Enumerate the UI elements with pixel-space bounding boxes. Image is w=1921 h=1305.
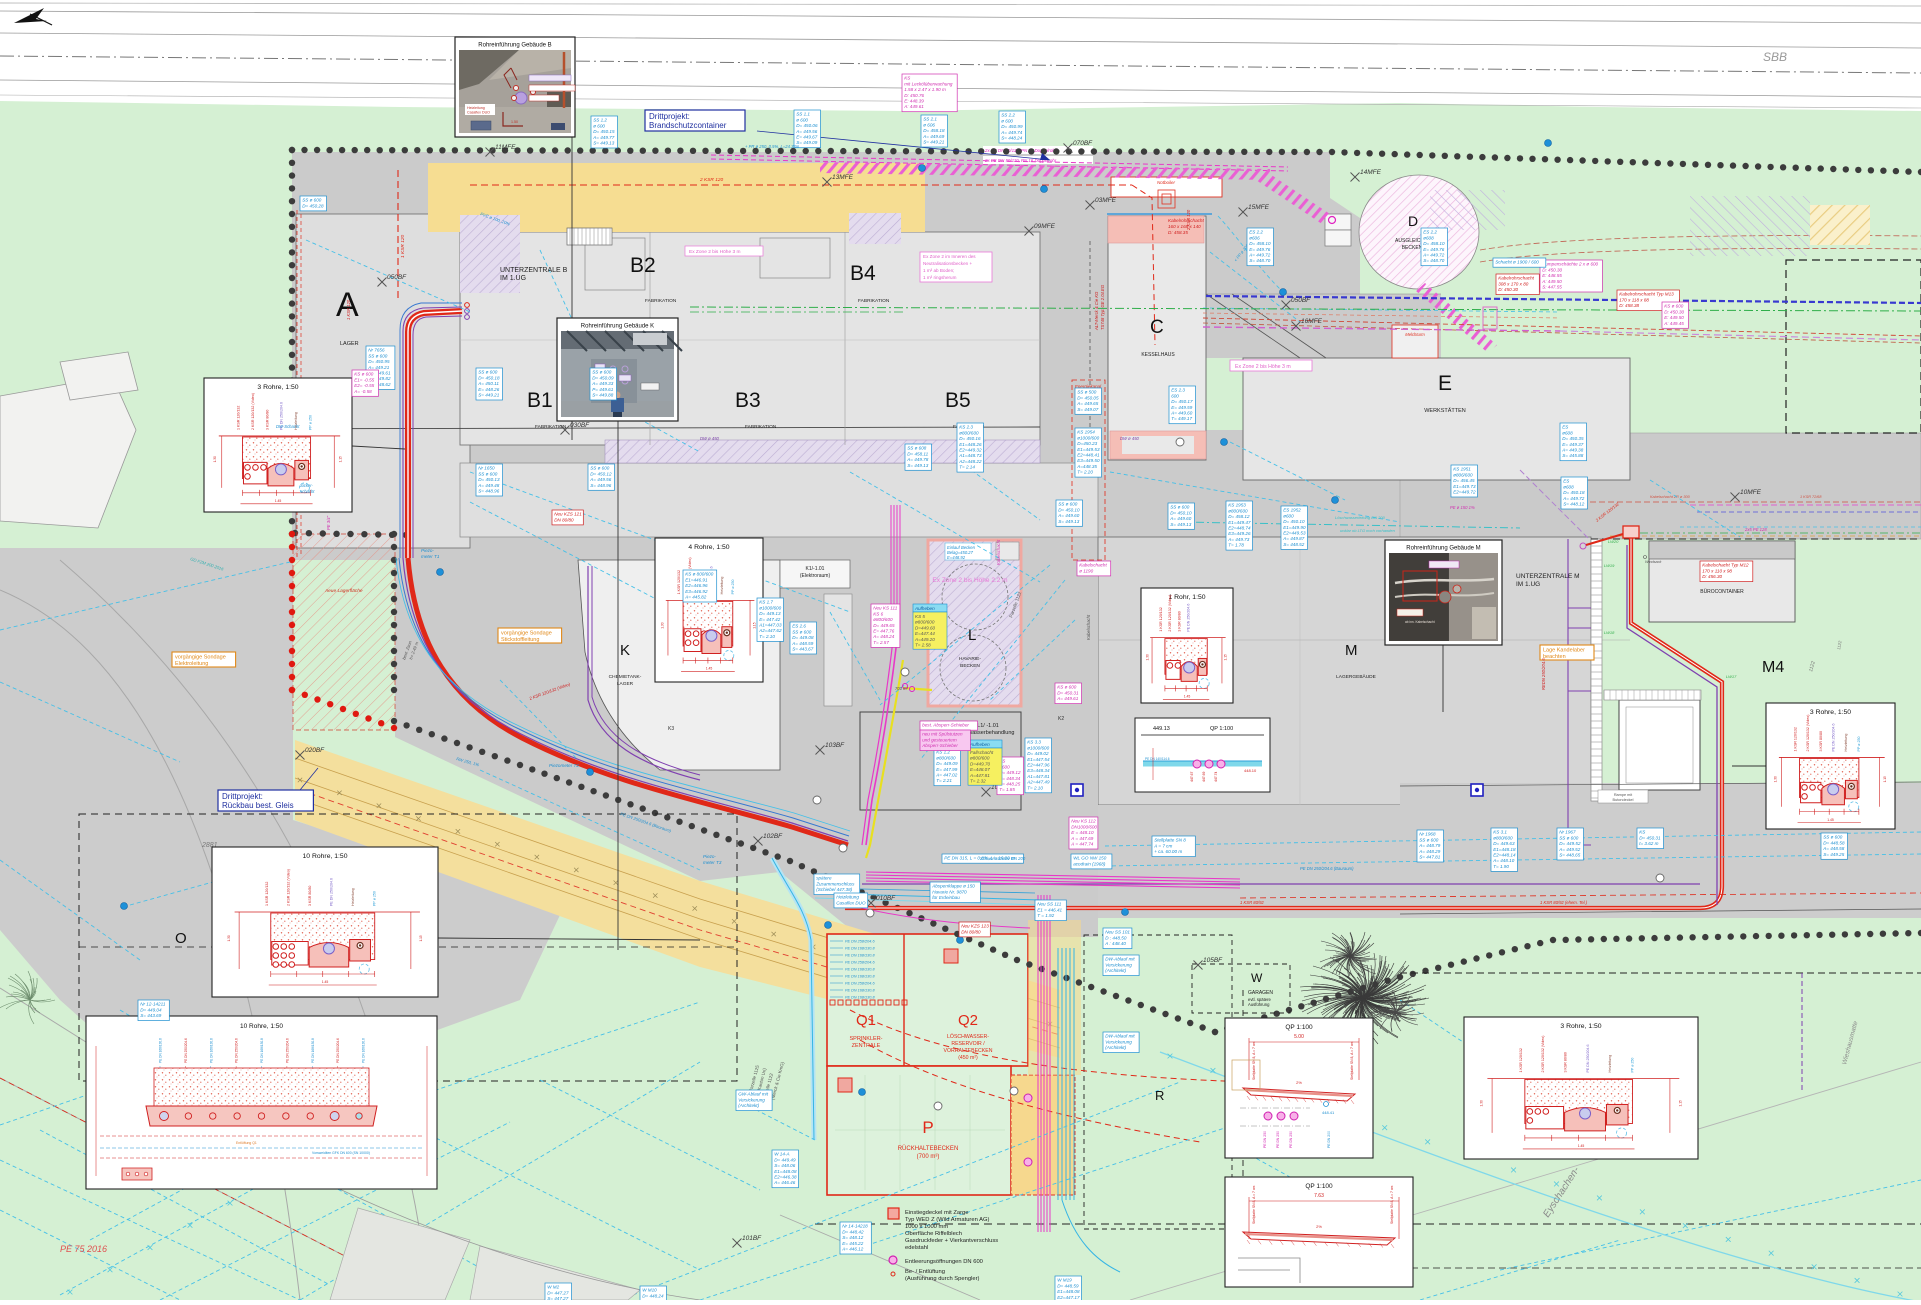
svg-text:LW19: LW19	[1604, 563, 1615, 568]
svg-text:ø608: ø608	[1423, 235, 1434, 240]
svg-text:1.50: 1.50	[511, 120, 518, 124]
svg-text:E=448.92: E=448.92	[947, 555, 966, 560]
svg-text:HAVARIE-: HAVARIE-	[959, 656, 981, 662]
svg-text:E= 448.34: E= 448.34	[999, 776, 1021, 781]
svg-text:RESERVOIR /: RESERVOIR /	[951, 1041, 985, 1047]
svg-text:DW ø 450: DW ø 450	[700, 436, 720, 441]
svg-text:1.45: 1.45	[1578, 1144, 1585, 1148]
svg-text:1.15: 1.15	[1679, 1100, 1683, 1106]
svg-text:03MFE: 03MFE	[1095, 197, 1117, 204]
svg-text:D= 450.18: D= 450.18	[478, 375, 500, 380]
svg-text:E2=447.96: E2=447.96	[1027, 763, 1050, 768]
svg-text:E2=446.96: E2=446.96	[685, 583, 708, 588]
svg-text:Schacht ø 1900 / 600: Schacht ø 1900 / 600	[1495, 260, 1539, 265]
svg-text:schacht: schacht	[300, 489, 315, 494]
svg-text:2 KSR 120/132 (Video): 2 KSR 120/132 (Video)	[251, 393, 255, 430]
svg-text:449.13: 449.13	[1153, 726, 1170, 732]
svg-text:A=448.35: A=448.35	[1076, 464, 1097, 469]
svg-text:best. Absperr-Schieber: best. Absperr-Schieber	[922, 723, 969, 728]
svg-text:1 m³ ringsherum: 1 m³ ringsherum	[923, 275, 957, 280]
svg-text:ø 600: ø 600	[593, 123, 605, 128]
svg-text:105BF: 105BF	[1203, 957, 1223, 964]
svg-text:Heizleitung: Heizleitung	[1608, 1055, 1612, 1073]
svg-text:13MFE: 13MFE	[832, 174, 854, 181]
svg-text:A= 449.21: A= 449.21	[367, 365, 390, 370]
svg-text:SS ø 600: SS ø 600	[590, 466, 610, 471]
svg-text:UNTERZENTRALE B: UNTERZENTRALE B	[500, 267, 568, 274]
svg-text:ES 2.2: ES 2.2	[1423, 230, 1437, 235]
svg-text:1.30: 1.30	[1145, 654, 1149, 660]
svg-text:D=450.23: D=450.23	[1077, 441, 1097, 446]
svg-text:SPRINKLER-: SPRINKLER-	[849, 1036, 882, 1042]
svg-text:Kabelschacht: Kabelschacht	[1079, 563, 1107, 568]
svg-text:E2=449.72: E2=449.72	[1453, 490, 1476, 495]
svg-text:und gesteuertem: und gesteuertem	[922, 737, 957, 742]
svg-text:1.45: 1.45	[275, 499, 282, 503]
svg-text:Heizleitung: Heizleitung	[467, 106, 485, 110]
svg-text:D: 450.30: D: 450.30	[1542, 267, 1562, 272]
svg-text:A= 449.72: A= 449.72	[1562, 496, 1585, 501]
svg-text:Havarie Nr. 9870: Havarie Nr. 9870	[932, 889, 967, 894]
svg-text:spätere: spätere	[816, 876, 832, 881]
svg-text:ES 1952: ES 1952	[1283, 508, 1301, 513]
svg-text:1 KSR 120/132: 1 KSR 120/132	[265, 882, 269, 906]
svg-text:KS 3.3: KS 3.3	[1027, 740, 1041, 745]
svg-text:A= -0.58: A= -0.58	[353, 389, 372, 394]
svg-text:D: 458.38: D: 458.38	[1619, 303, 1639, 308]
svg-text:B2: B2	[630, 254, 656, 277]
svg-text:D= 449.63: D= 449.63	[1493, 841, 1515, 846]
svg-text:ø 600: ø 600	[796, 117, 808, 122]
svg-text:T= 2.20: T= 2.20	[1077, 470, 1093, 475]
svg-text:10 Rohre, 1:50: 10 Rohre, 1:50	[303, 853, 348, 860]
svg-text:Ausführung: Ausführung	[1248, 1002, 1270, 1007]
svg-text:Nr 1968: Nr 1968	[1419, 832, 1436, 837]
svg-text:3 KSR 80/80: 3 KSR 80/80	[308, 886, 312, 906]
svg-text:für Erdeinbau: für Erdeinbau	[932, 895, 960, 900]
svg-text:PE 75 2016: PE 75 2016	[60, 1244, 107, 1254]
svg-text:E1=446.91: E1=446.91	[685, 577, 708, 582]
svg-text:050BF: 050BF	[387, 274, 407, 281]
svg-text:1.15: 1.15	[339, 456, 343, 462]
svg-text:1.15: 1.15	[419, 935, 423, 941]
svg-text:DW-Ablauf mit: DW-Ablauf mit	[1105, 957, 1135, 962]
svg-text:Ex Zone 2 bis Höhe 3 m: Ex Zone 2 bis Höhe 3 m	[1235, 364, 1291, 370]
svg-text:160 x 168 x 140: 160 x 168 x 140	[1168, 224, 1201, 229]
svg-text:A= 446.46: A= 446.46	[773, 1180, 796, 1185]
svg-text:T= 2.57: T= 2.57	[873, 640, 889, 645]
svg-text:VORHALTEBECKEN: VORHALTEBECKEN	[944, 1048, 993, 1054]
svg-text:A= 449.60: A= 449.60	[1169, 516, 1192, 521]
svg-text:IM 1.UG: IM 1.UG	[500, 275, 526, 282]
svg-text:D= 449.09: D= 449.09	[936, 761, 958, 766]
svg-text:D= 450.12: D= 450.12	[590, 471, 612, 476]
svg-text:SS ø 600: SS ø 600	[1823, 835, 1843, 840]
svg-text:PE DN 250/204.6: PE DN 250/204.6	[330, 878, 334, 906]
svg-text:P: P	[922, 1118, 933, 1137]
svg-text:Brandschutzcontainer: Brandschutzcontainer	[649, 121, 727, 130]
svg-text:KESSELHAUS: KESSELHAUS	[1141, 352, 1175, 358]
svg-text:acodrain (1968): acodrain (1968)	[1073, 861, 1106, 866]
svg-text:B1: B1	[527, 389, 553, 412]
svg-text:E3=449.26: E3=449.26	[1228, 531, 1251, 536]
svg-text:PE DN 258/204.6: PE DN 258/204.6	[845, 982, 875, 986]
svg-text:(Architekt): (Architekt)	[1105, 968, 1126, 973]
svg-text:SS ø 600: SS ø 600	[1170, 505, 1190, 510]
svg-text:SS ø 600: SS ø 600	[302, 198, 322, 203]
svg-text:1 KSR 120/132: 1 KSR 120/132	[1519, 1048, 1523, 1072]
svg-text:D: 456.30: D: 456.30	[1702, 574, 1722, 579]
svg-text:S= 447.81: S= 447.81	[1419, 855, 1441, 860]
svg-text:Ex Zone 2 im Inneren des: Ex Zone 2 im Inneren des	[923, 254, 976, 259]
svg-text:ZENTRALE: ZENTRALE	[852, 1043, 881, 1049]
svg-text:Rohreinführung Gebäude M: Rohreinführung Gebäude M	[1406, 546, 1480, 552]
svg-text:Piezo-: Piezo-	[703, 854, 716, 859]
svg-text:A= 448.29: A= 448.29	[1418, 849, 1441, 854]
svg-text:E: 448.39: E: 448.39	[904, 99, 924, 104]
svg-text:SS ø 600: SS ø 600	[592, 370, 612, 375]
svg-text:Vorsweiditen GFK DN 600 (SN 10: Vorsweiditen GFK DN 600 (SN 10000)	[312, 1151, 370, 1155]
svg-text:1 KSR 120: 1 KSR 120	[346, 299, 351, 320]
svg-text:E= 449.67: E= 449.67	[796, 135, 818, 140]
svg-text:LÖSCHWASSER-: LÖSCHWASSER-	[947, 1033, 989, 1040]
svg-text:D= 449.04: D= 449.04	[140, 1007, 162, 1012]
svg-text:030BF: 030BF	[570, 422, 590, 429]
svg-text:+ ca. 60.00 m: + ca. 60.00 m	[1154, 849, 1182, 854]
svg-text:GW-Ablauf mit: GW-Ablauf mit	[738, 1092, 769, 1097]
svg-text:A1=447.81: A1=447.81	[1026, 774, 1050, 779]
svg-text:D= 449.12: D= 449.12	[999, 770, 1021, 775]
svg-text:S= 445.88: S= 445.88	[1562, 453, 1584, 458]
svg-text:A= 445.82: A= 445.82	[684, 595, 707, 600]
svg-text:E= 449.76: E= 449.76	[1423, 247, 1445, 252]
svg-text:Versickerung: Versickerung	[1105, 1039, 1132, 1044]
svg-text:DN1000/600: DN1000/600	[1071, 824, 1097, 829]
svg-text:1.30: 1.30	[213, 456, 217, 462]
svg-text:D= 450.10: D= 450.10	[1283, 519, 1305, 524]
svg-text:09MFE: 09MFE	[1034, 223, 1056, 230]
svg-text:D: D	[1408, 213, 1418, 229]
svg-text:Nr 7656: Nr 7656	[368, 348, 385, 353]
svg-text:TS748 Typ: GE 2.04.EG: TS748 Typ: GE 2.04.EG	[1100, 284, 1105, 330]
svg-text:T= 2.14: T= 2.14	[959, 465, 975, 470]
svg-text:E: E	[1438, 372, 1452, 395]
svg-text:PE DN 140/114.6: PE DN 140/114.6	[1145, 757, 1170, 761]
svg-text:K3: K3	[668, 726, 674, 732]
svg-text:Absperr-Schieber: Absperr-Schieber	[921, 743, 958, 748]
svg-text:E = 448.10: E = 448.10	[1071, 830, 1094, 835]
svg-text:PP ø 250: PP ø 250	[373, 891, 377, 906]
svg-text:+ PR ø 250, 0.5%, L=24.33m: + PR ø 250, 0.5%, L=24.33m	[745, 144, 800, 149]
svg-text:WL GO NW 150: WL GO NW 150	[1073, 856, 1107, 861]
svg-text:700 m³: 700 m³	[895, 686, 909, 691]
svg-text:Sicker-: Sicker-	[300, 483, 314, 488]
svg-text:ø800/600: ø800/600	[970, 756, 990, 761]
svg-text:D= 450.17: D= 450.17	[1171, 399, 1193, 404]
svg-text:D= 447.27: D= 447.27	[547, 1290, 569, 1295]
svg-text:A2=447.62: A2=447.62	[758, 628, 782, 633]
svg-text:Kabelrohrschacht Typ M13: Kabelrohrschacht Typ M13	[1619, 292, 1674, 297]
svg-text:Rohreinführung Gebäude B: Rohreinführung Gebäude B	[478, 43, 551, 49]
svg-text:DN 80/80: DN 80/80	[961, 929, 981, 934]
svg-text:BÜROCONTAINER: BÜROCONTAINER	[1700, 588, 1744, 595]
svg-text:Ex Zone 2 bis Höhe 3 m: Ex Zone 2 bis Höhe 3 m	[689, 249, 740, 255]
svg-text:D= 450.28: D= 450.28	[302, 203, 324, 208]
svg-text:LAGER: LAGER	[617, 681, 634, 687]
svg-text:D= 456.45: D= 456.45	[1453, 478, 1475, 483]
svg-text:D= 449.13: D= 449.13	[759, 611, 781, 616]
svg-text:1 m³ ab Boden;: 1 m³ ab Boden;	[923, 268, 954, 273]
svg-text:ø800/600: ø800/600	[959, 430, 979, 435]
svg-text:A= 449.61: A= 449.61	[1056, 696, 1079, 701]
svg-text:KS: KS	[904, 76, 911, 81]
svg-text:E1=447.54: E1=447.54	[1027, 757, 1050, 762]
svg-text:SS 2.1: SS 2.1	[923, 117, 937, 122]
svg-text:Stellplatte SN 8, A = 7 cm: Stellplatte SN 8, A = 7 cm	[1350, 1041, 1354, 1080]
svg-text:mit Leckölüberwachung: mit Leckölüberwachung	[904, 81, 953, 86]
svg-text:ø606: ø606	[1249, 235, 1260, 240]
svg-text:Kabelschacht: Kabelschacht	[996, 539, 1001, 565]
svg-text:A: 449.45: A: 449.45	[1663, 321, 1684, 326]
svg-text:Windsack: Windsack	[1645, 560, 1663, 564]
svg-text:K: K	[620, 642, 630, 659]
svg-text:A= 448.79: A= 448.79	[1418, 843, 1441, 848]
svg-text:S= 449.13: S= 449.13	[1170, 522, 1192, 527]
svg-text:SS ø 600: SS ø 600	[478, 370, 498, 375]
svg-text:DW ø 450: DW ø 450	[1120, 436, 1140, 441]
svg-text:PE DN 250/204.6: PE DN 250/204.6	[336, 1038, 340, 1063]
svg-text:E2=448.41: E2=448.41	[1077, 453, 1100, 458]
svg-text:ø608: ø608	[1562, 430, 1573, 435]
svg-text:E=448.07: E=448.07	[970, 767, 990, 772]
svg-text:E3=446.92: E3=446.92	[685, 589, 708, 594]
svg-text:A= 446.12: A= 446.12	[841, 1247, 864, 1252]
svg-text:PE ø 150 1%: PE ø 150 1%	[1450, 505, 1475, 510]
svg-text:Einstiegdeckel mit Zarge: Einstiegdeckel mit Zarge	[905, 1210, 968, 1216]
svg-text:edelstahl: edelstahl	[905, 1245, 928, 1251]
svg-text:SS ø 600: SS ø 600	[792, 629, 812, 634]
svg-text:3 Rohre, 1:50: 3 Rohre, 1:50	[1810, 709, 1851, 716]
svg-text:S= 447.27: S= 447.27	[547, 1296, 569, 1300]
svg-text:UNTERZENTRALE M: UNTERZENTRALE M	[1516, 573, 1580, 580]
svg-text:A= 449.72: A= 449.72	[1248, 253, 1271, 258]
svg-text:A= 449.65: A= 449.65	[1076, 401, 1099, 406]
svg-text:2 KSR 120/132 (Video): 2 KSR 120/132 (Video)	[1168, 595, 1172, 632]
svg-text:PE DN 250/204.6 (Bauraum): PE DN 250/204.6 (Bauraum)	[1300, 866, 1354, 871]
svg-text:1 Rohr, 1:50: 1 Rohr, 1:50	[1168, 594, 1205, 601]
svg-text:Elektroleitung: Elektroleitung	[175, 661, 208, 667]
svg-text:QP 1:100: QP 1:100	[1305, 1183, 1333, 1190]
svg-text:Heizleitung: Heizleitung	[1844, 734, 1848, 752]
svg-text:E2=449.32: E2=449.32	[959, 448, 982, 453]
svg-text:KS 2.3: KS 2.3	[959, 425, 973, 430]
svg-text:Kabelschacht: Kabelschacht	[1086, 614, 1091, 640]
svg-text:REDN 250/204.6: REDN 250/204.6	[1541, 658, 1546, 690]
svg-text:Casaflex DUO: Casaflex DUO	[467, 111, 490, 115]
svg-text:Drittprojekt:: Drittprojekt:	[222, 792, 263, 801]
svg-text:D= 448.59: D= 448.59	[1057, 1283, 1079, 1288]
svg-text:E3=449.50: E3=449.50	[1077, 458, 1100, 463]
svg-text:Absperrklappe ø 150: Absperrklappe ø 150	[931, 884, 975, 889]
svg-text:E: 449.50: E: 449.50	[1664, 315, 1684, 320]
svg-text:S= 448.70: S= 448.70	[1249, 258, 1271, 263]
svg-text:S= 448.24: S= 448.24	[1001, 136, 1023, 141]
svg-text:E1 = 446.41: E1 = 446.41	[1037, 907, 1062, 912]
svg-text:S= 448.70: S= 448.70	[1423, 258, 1445, 263]
svg-text:600: 600	[1171, 393, 1179, 398]
svg-text:PP ø 250: PP ø 250	[1857, 737, 1861, 752]
svg-text:ab inn. Kabelschacht: ab inn. Kabelschacht	[1405, 620, 1435, 624]
svg-text:Stellplatte SN 8: Stellplatte SN 8	[1154, 838, 1186, 843]
svg-text:SS ø 600: SS ø 600	[1419, 837, 1439, 842]
svg-text:Casaflex DUO: Casaflex DUO	[836, 900, 866, 905]
svg-text:SS ø 608: SS ø 608	[907, 446, 927, 451]
svg-text:D= 449.02: D= 449.02	[1027, 751, 1049, 756]
svg-text:KS 1953: KS 1953	[1228, 503, 1246, 508]
svg-text:D= 449.52: D= 449.52	[1559, 841, 1581, 846]
svg-text:L1/ -1.01: L1/ -1.01	[977, 723, 999, 729]
svg-text:T= 1.85: T= 1.85	[999, 787, 1015, 792]
svg-text:PE DN 168/130.8: PE DN 168/130.8	[311, 1038, 315, 1063]
svg-text:Ex Zone 2 bis Höhe 2.2 m: Ex Zone 2 bis Höhe 2.2 m	[932, 577, 1007, 584]
svg-text:3 Rohre, 1:50: 3 Rohre, 1:50	[257, 384, 298, 391]
svg-text:SS 2.2: SS 2.2	[1001, 113, 1015, 118]
svg-text:Stickstoffleitung: Stickstoffleitung	[501, 637, 539, 643]
svg-text:A = 447.69: A = 447.69	[1070, 836, 1094, 841]
svg-text:2 KSR 120: 2 KSR 120	[699, 177, 724, 183]
svg-text:A= 448.58: A= 448.58	[1822, 846, 1845, 851]
svg-text:D: 450.30: D: 450.30	[1498, 287, 1518, 292]
svg-text:S= 448.12: S= 448.12	[842, 1235, 864, 1240]
svg-text:ø1000/600: ø1000/600	[1027, 745, 1049, 750]
svg-text:E1=448.08: E1=448.08	[774, 1169, 797, 1174]
svg-text:Nr 1967: Nr 1967	[1559, 830, 1576, 835]
svg-text:Butondeckel: Butondeckel	[1613, 798, 1634, 802]
svg-text:SS ø 500: SS ø 500	[1077, 390, 1097, 395]
svg-text:ø800/600: ø800/600	[915, 620, 935, 625]
svg-text:Löschwasserleitung DN 200: Löschwasserleitung DN 200	[1335, 515, 1386, 520]
svg-text:A=447.81: A=447.81	[969, 773, 990, 778]
svg-text:2x5 PE 128: 2x5 PE 128	[1744, 527, 1767, 532]
svg-text:E1=449.47: E1=449.47	[1228, 520, 1251, 525]
svg-text:KS 5: KS 5	[915, 614, 925, 619]
svg-text:LAGER: LAGER	[340, 341, 359, 347]
svg-text:T= 2.58: T= 2.58	[915, 643, 931, 648]
svg-text:15MFE: 15MFE	[1248, 204, 1270, 211]
svg-text:meter T1: meter T1	[421, 554, 440, 559]
svg-text:Rückbau best. Gleis: Rückbau best. Gleis	[222, 801, 294, 810]
svg-text:S= 448.96: S= 448.96	[590, 483, 612, 488]
svg-text:1 KSR 120/132: 1 KSR 120/132	[236, 406, 240, 430]
svg-text:SBB: SBB	[1763, 50, 1787, 64]
svg-text:Neu KS 112: Neu KS 112	[1071, 819, 1096, 824]
svg-text:2 KSR 120/132 (Video): 2 KSR 120/132 (Video)	[286, 869, 290, 906]
svg-text:Drittprojekt:: Drittprojekt:	[649, 112, 690, 121]
svg-text:170 x 110 x 98: 170 x 110 x 98	[1702, 568, 1732, 573]
svg-text:Neu KS 111: Neu KS 111	[873, 606, 898, 611]
svg-text:D= 458.18: D= 458.18	[923, 128, 945, 133]
svg-text:Lage Kandelaber: Lage Kandelaber	[1543, 648, 1585, 654]
svg-text:020BF: 020BF	[305, 747, 325, 754]
svg-text:BECKEN: BECKEN	[1402, 245, 1423, 251]
svg-text:E2=449.53: E2=449.53	[1283, 531, 1306, 536]
svg-text:S= 449.25: S= 449.25	[1823, 852, 1845, 857]
svg-text:SS ø 600: SS ø 600	[368, 353, 388, 358]
svg-text:D= 450.31: D= 450.31	[1057, 690, 1079, 695]
svg-text:ES 2.3: ES 2.3	[1171, 388, 1185, 393]
svg-text:A2=447.49: A2=447.49	[1026, 780, 1050, 785]
svg-text:101BF: 101BF	[742, 1235, 762, 1242]
svg-text:D= 450.31: D= 450.31	[1639, 835, 1661, 840]
svg-text:A= 449.48: A= 449.48	[477, 483, 500, 488]
svg-text:050BF: 050BF	[1291, 297, 1311, 304]
svg-text:PE DN 250/204.6: PE DN 250/204.6	[235, 1038, 239, 1063]
svg-text:D= 448.58: D= 448.58	[1823, 840, 1845, 845]
svg-text:1.30: 1.30	[227, 935, 231, 941]
svg-text:neu mit Spülstutzen: neu mit Spülstutzen	[922, 732, 963, 737]
svg-text:S= 449.21: S= 449.21	[478, 393, 500, 398]
svg-text:P= 449.61: P= 449.61	[592, 387, 614, 392]
svg-text:D= 458.10: D= 458.10	[1249, 241, 1271, 246]
svg-text:Neu SS 111: Neu SS 111	[1037, 902, 1062, 907]
svg-text:SS 1.1: SS 1.1	[796, 112, 810, 117]
svg-text:E1=448.26: E1=448.26	[959, 442, 982, 447]
svg-text:E= 447.99: E= 447.99	[936, 767, 958, 772]
svg-text:E2=446.38: E2=446.38	[774, 1175, 797, 1180]
svg-text:D: 450.30: D: 450.30	[1664, 309, 1684, 314]
svg-text:D= 448.42: D= 448.42	[842, 1229, 864, 1234]
svg-text:070BF: 070BF	[1073, 140, 1093, 147]
svg-text:10 Rohre, 1:50: 10 Rohre, 1:50	[240, 1023, 283, 1030]
svg-text:W M2: W M2	[547, 1285, 559, 1290]
svg-text:T= 449.17: T= 449.17	[1171, 416, 1192, 421]
svg-text:E2=448.74: E2=448.74	[1228, 526, 1251, 531]
svg-text:A=449.20: A=449.20	[914, 637, 935, 642]
svg-text:B3: B3	[735, 389, 761, 412]
svg-text:PE DN 258/204.6: PE DN 258/204.6	[845, 940, 875, 944]
svg-text:Melchturm: Melchturm	[1405, 332, 1425, 337]
svg-text:KS 3.1: KS 3.1	[1493, 830, 1507, 835]
svg-text:4 Rohre, 1:50: 4 Rohre, 1:50	[688, 544, 729, 551]
svg-text:PE DN 168/130.8: PE DN 168/130.8	[260, 1038, 264, 1063]
svg-text:1.15: 1.15	[752, 622, 756, 628]
svg-text:Stellplatte SN 8, A = 7 cm: Stellplatte SN 8, A = 7 cm	[1252, 1041, 1256, 1080]
svg-text:PP ø 250: PP ø 250	[731, 579, 735, 594]
svg-text:A= 449.52: A= 449.52	[1558, 847, 1581, 852]
svg-text:beachten: beachten	[1543, 654, 1566, 660]
svg-text:KS: KS	[1639, 830, 1646, 835]
svg-text:3 KSR 80/80: 3 KSR 80/80	[1819, 731, 1823, 751]
svg-text:D: 450.76: D: 450.76	[904, 93, 924, 98]
svg-text:S= 449.21: S= 449.21	[923, 140, 945, 145]
svg-text:(Architekt): (Architekt)	[738, 1103, 759, 1108]
svg-text:3 KSR 80/80: 3 KSR 80/80	[265, 410, 269, 430]
svg-text:DN 80/80: DN 80/80	[554, 517, 574, 522]
svg-text:Neu KZS 121: Neu KZS 121	[554, 512, 582, 517]
svg-text:C: C	[1150, 317, 1164, 338]
svg-text:D= 450.95: D= 450.95	[368, 359, 390, 364]
svg-text:1.30: 1.30	[1480, 1100, 1484, 1106]
svg-text:S= 443.69: S= 443.69	[140, 1013, 162, 1018]
svg-text:ES: ES	[1563, 479, 1570, 484]
svg-text:T= 1.78: T= 1.78	[1228, 543, 1244, 548]
svg-text:1 KSR 120/132: 1 KSR 120/132	[1159, 607, 1163, 631]
svg-text:Versickerung: Versickerung	[738, 1097, 765, 1102]
svg-text:Rampe mit: Rampe mit	[1614, 793, 1633, 797]
svg-text:PE DN 250: PE DN 250	[1276, 1131, 1280, 1148]
svg-text:Nr 12-14211: Nr 12-14211	[140, 1002, 166, 1007]
svg-text:LAGERGEBÄUDE: LAGERGEBÄUDE	[1336, 673, 1376, 680]
